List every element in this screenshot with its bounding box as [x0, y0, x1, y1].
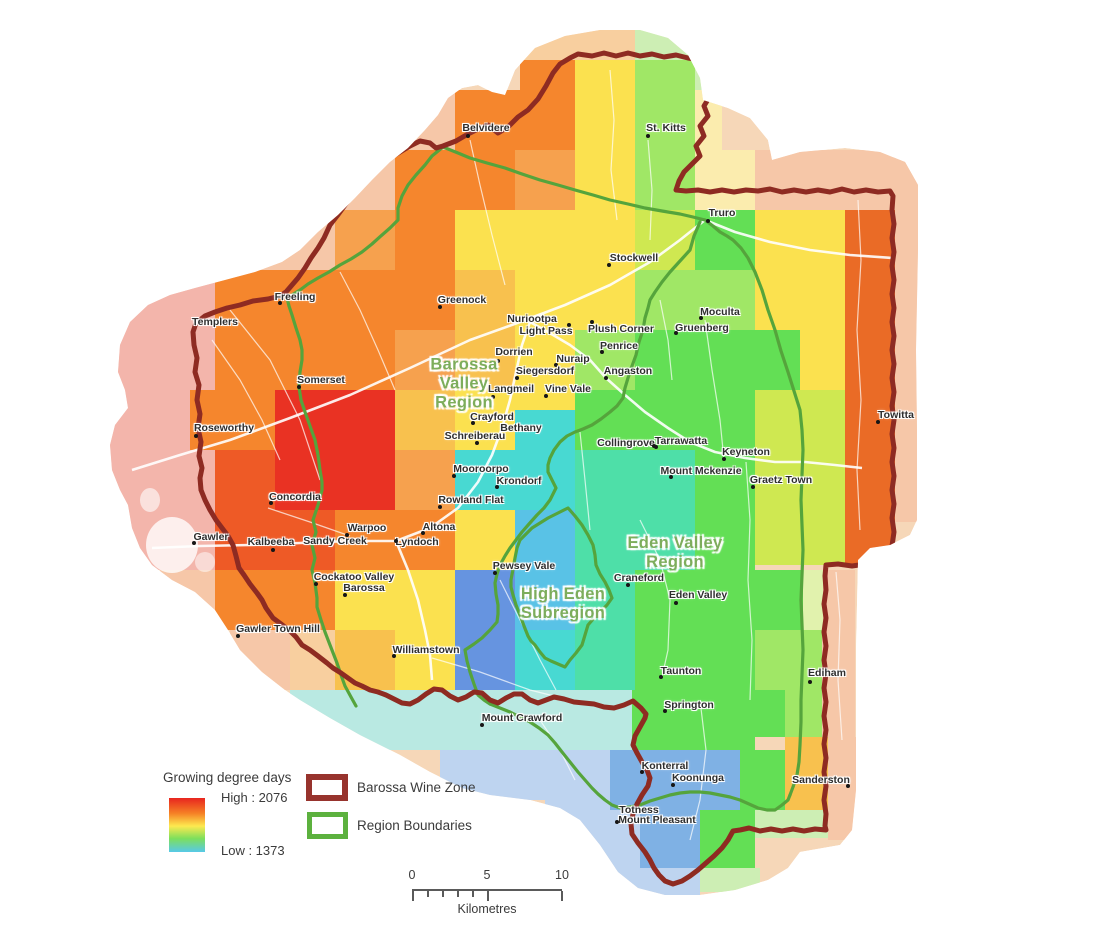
legend-high-value: High : 2076	[221, 790, 288, 805]
wine-zone-swatch	[306, 774, 348, 801]
scale-unit: Kilometres	[457, 902, 516, 916]
region-boundaries-label: Region Boundaries	[357, 818, 472, 833]
map-screenshot: BelvidereSt. KittsTruroStockwellGreenock…	[0, 0, 1095, 947]
region-boundaries-swatch	[307, 812, 348, 839]
scale-mid: 5	[484, 868, 491, 882]
legend-title: Growing degree days	[163, 770, 291, 785]
scale-start: 0	[409, 868, 416, 882]
scale-end: 10	[555, 868, 569, 882]
color-ramp-swatch	[169, 798, 205, 852]
legend: Growing degree days High : 2076 Low : 13…	[0, 0, 1095, 947]
wine-zone-label: Barossa Wine Zone	[357, 780, 476, 795]
legend-low-value: Low : 1373	[221, 843, 285, 858]
